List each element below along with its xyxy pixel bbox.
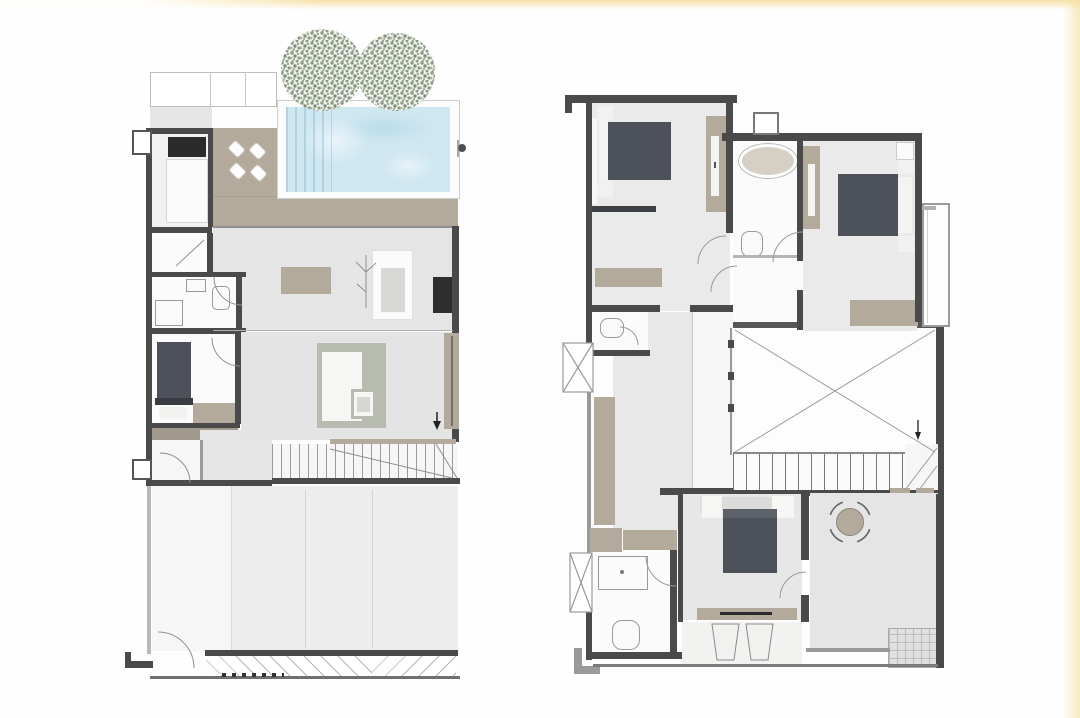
wall-right xyxy=(936,494,944,668)
wall xyxy=(801,595,809,622)
stair-winder xyxy=(905,444,938,492)
wall xyxy=(586,652,682,659)
void-floor xyxy=(733,328,938,455)
wall-top xyxy=(722,133,922,141)
wall-left-low xyxy=(147,486,151,654)
wall-light xyxy=(806,648,890,652)
coffee-table-top xyxy=(357,397,370,412)
wall xyxy=(586,305,660,312)
wall xyxy=(272,478,460,484)
wall xyxy=(207,233,213,272)
mullion xyxy=(728,372,734,380)
bed-c xyxy=(723,509,777,573)
entry-block xyxy=(150,72,277,107)
window-box xyxy=(132,130,152,155)
pool-deck-strip xyxy=(213,196,458,226)
wardrobe-handle xyxy=(714,162,716,168)
bed-footer xyxy=(155,398,193,405)
balcony-strip xyxy=(682,622,802,666)
nightstand xyxy=(702,496,722,518)
boundary-line xyxy=(150,676,460,679)
kitchen-cabinet xyxy=(166,159,208,223)
wall xyxy=(801,492,809,560)
kitchen-counter xyxy=(168,137,206,157)
kitchen-island xyxy=(281,267,331,294)
boundary-line xyxy=(593,664,938,667)
driveway-hatch xyxy=(372,656,456,676)
entry-divider xyxy=(210,72,211,107)
corner-wall xyxy=(125,652,131,668)
stairs-upper xyxy=(733,452,905,492)
entry-divider xyxy=(245,72,246,107)
headboard xyxy=(898,177,912,233)
mullion xyxy=(728,340,734,348)
tree-icon xyxy=(281,29,435,111)
stair-landing xyxy=(692,312,733,490)
bed-a xyxy=(608,122,671,180)
wall-right xyxy=(915,133,922,322)
entry-floor xyxy=(150,107,212,130)
leisure-floor xyxy=(810,493,938,650)
scale-marks xyxy=(222,673,284,677)
toilet xyxy=(600,318,624,338)
desk xyxy=(592,206,656,212)
wall xyxy=(690,305,733,312)
floor-plan-canvas xyxy=(0,0,1080,718)
wall xyxy=(726,103,733,233)
bed xyxy=(157,342,191,400)
round-table xyxy=(836,508,864,536)
bathtub xyxy=(739,144,797,178)
desk-edge xyxy=(720,612,772,615)
pool-lane-texture xyxy=(286,107,332,192)
garage-line xyxy=(372,490,373,648)
divider-line xyxy=(213,330,453,331)
mullion xyxy=(728,404,734,412)
cabinet xyxy=(623,530,677,550)
vent-box xyxy=(753,112,779,135)
sink xyxy=(186,279,206,292)
wardrobe-strip xyxy=(193,403,238,423)
hall-closet xyxy=(594,397,615,525)
wardrobe-b-low xyxy=(850,300,918,326)
grid-mat xyxy=(888,628,938,668)
laundry-floor xyxy=(152,233,207,272)
wardrobe-b-door xyxy=(808,164,815,216)
wc-floor xyxy=(152,440,200,480)
toilet xyxy=(612,620,640,650)
bed-c-pillow xyxy=(723,509,777,518)
wall xyxy=(200,440,203,480)
entry-step xyxy=(574,666,600,674)
window-box xyxy=(132,459,152,480)
nightstand xyxy=(898,158,914,174)
top-edge-glow xyxy=(0,0,1080,10)
garage-line xyxy=(305,490,306,648)
curtain-track xyxy=(451,336,453,426)
dining-table-top xyxy=(381,268,405,312)
living-floor xyxy=(213,228,458,330)
toilet xyxy=(212,286,230,310)
wall xyxy=(670,550,677,655)
headboard xyxy=(599,120,608,181)
wall xyxy=(797,290,803,330)
divider xyxy=(733,255,803,258)
garage-side xyxy=(152,486,232,651)
shower xyxy=(155,300,183,326)
wall xyxy=(678,492,683,622)
stairs xyxy=(272,444,458,478)
right-edge-glow xyxy=(1062,0,1080,718)
closet-strip xyxy=(595,268,662,287)
nightstand xyxy=(597,106,613,120)
wall xyxy=(588,350,650,356)
shower-drain xyxy=(620,570,624,574)
nightstand xyxy=(898,236,914,252)
cabinet xyxy=(590,528,622,552)
balcony-tick xyxy=(922,206,936,210)
balcony-rail xyxy=(927,207,928,323)
toilet xyxy=(741,231,763,257)
bed-b xyxy=(838,174,898,236)
bedside-rug xyxy=(159,407,187,419)
closet xyxy=(896,142,914,160)
nightstand xyxy=(597,181,613,197)
wall xyxy=(236,277,242,330)
wall-top xyxy=(565,95,737,103)
corner-stub xyxy=(565,95,572,113)
